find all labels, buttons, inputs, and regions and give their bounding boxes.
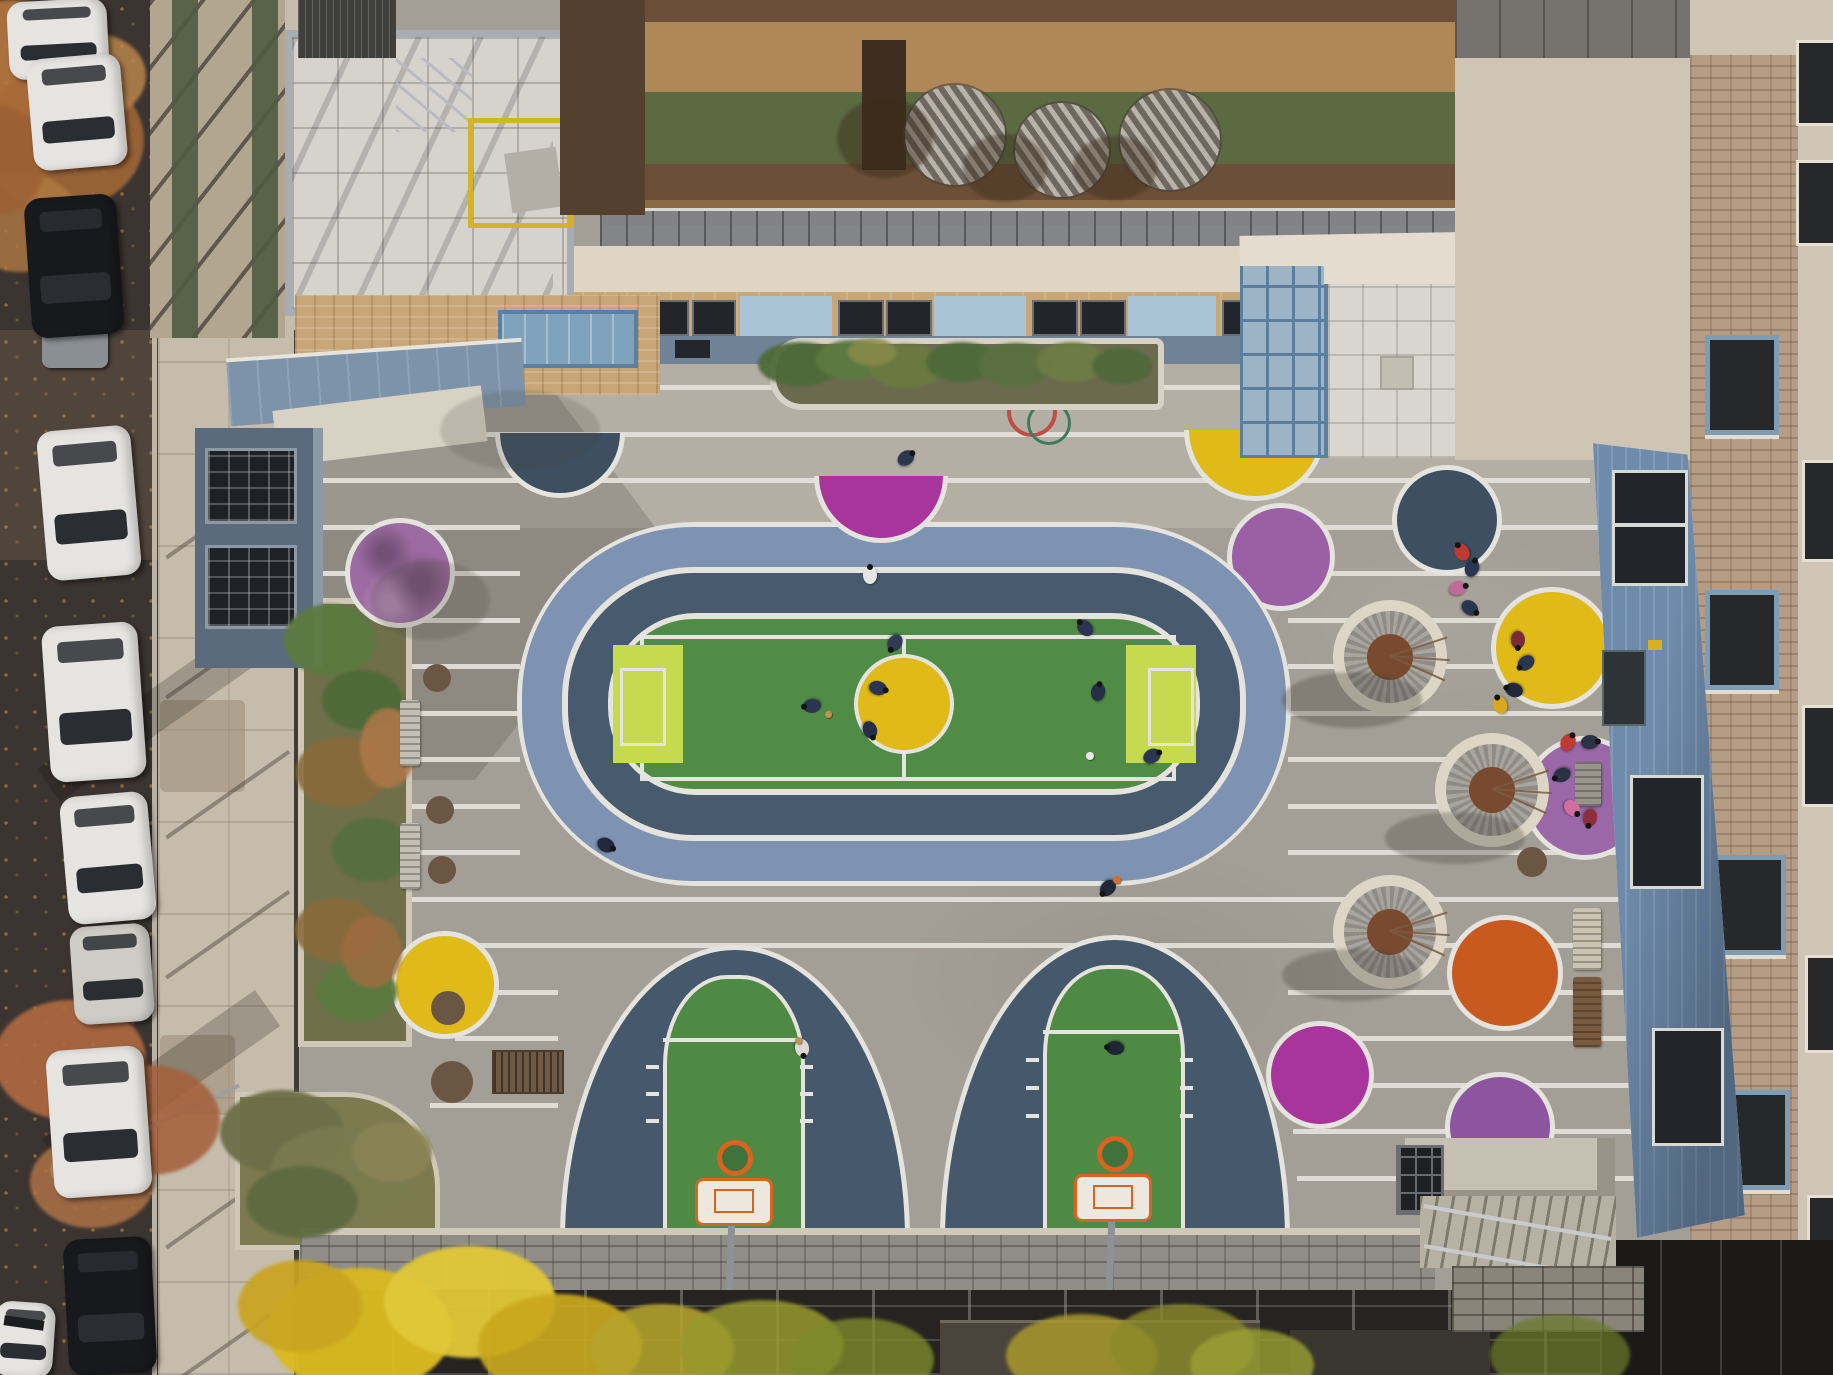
goal-box-right: [1148, 668, 1194, 746]
lane-tick: [800, 1065, 813, 1069]
terrace-band: [600, 0, 1460, 22]
lane-tick: [1026, 1086, 1039, 1090]
pavement-stripe: [310, 943, 1650, 948]
free-throw-line-left: [663, 1038, 801, 1042]
parked-car: [0, 1300, 57, 1375]
blue-building-window: [1652, 1028, 1724, 1146]
painted-circle-stool: [428, 856, 456, 884]
low-rooftop: [1290, 1330, 1490, 1375]
car-windshield: [77, 1312, 145, 1343]
school-window: [692, 300, 736, 336]
lane-tick: [646, 1092, 659, 1096]
brick-window: [1705, 335, 1779, 435]
aerial-schoolyard-photo: [0, 0, 1833, 1375]
pavement-stripe: [1288, 571, 1618, 576]
brick-window: [1705, 590, 1779, 690]
guarded-window: [205, 448, 297, 524]
goal-box-left: [620, 668, 666, 746]
person-head: [1515, 645, 1521, 651]
cream-wall: [1455, 290, 1705, 460]
foliage-blob: [1282, 672, 1422, 728]
painted-circle-stool: [423, 664, 451, 692]
painted-circle-navy: [1397, 470, 1497, 570]
foliage-blob: [1385, 812, 1525, 864]
painted-circle-stool: [431, 991, 465, 1025]
backboard-square: [714, 1189, 754, 1213]
parked-car: [41, 621, 148, 783]
bench: [1573, 908, 1601, 970]
parked-car: [25, 52, 128, 172]
pavement-stripe: [455, 1036, 558, 1041]
ball: [1113, 876, 1121, 884]
basketball-rim: [1097, 1136, 1133, 1172]
blue-wall-panel: [1128, 296, 1216, 336]
lane-tick: [1180, 1058, 1193, 1062]
lane-tick: [1180, 1114, 1193, 1118]
person-head: [801, 703, 808, 710]
painted-circle-stool: [1517, 847, 1547, 877]
school-window: [1032, 300, 1078, 336]
blue-building-door: [1602, 650, 1646, 726]
bench: [1573, 977, 1601, 1047]
cream-window: [1802, 705, 1833, 807]
plaza-access-panel: [1380, 356, 1414, 390]
school-window: [838, 300, 884, 336]
person-head: [1096, 681, 1103, 688]
lane-tick: [800, 1119, 813, 1123]
foliage-blob: [1282, 949, 1422, 1001]
person: [863, 566, 877, 584]
rack-panel: [504, 147, 564, 214]
foliage-blob: [440, 390, 600, 470]
painted-circle-orange: [1452, 920, 1558, 1026]
lane-tick: [646, 1065, 659, 1069]
foliage-blob: [370, 560, 490, 640]
person-head: [1075, 618, 1083, 626]
parked-car: [45, 1045, 153, 1199]
blue-building-window: [1630, 775, 1704, 889]
foliage-blob: [284, 604, 376, 676]
school-window: [886, 300, 932, 336]
free-throw-line-right: [1043, 1030, 1181, 1034]
pavement-stripe: [430, 1103, 558, 1108]
blue-wall-panel: [740, 296, 832, 336]
glass-canopy: [1240, 266, 1324, 458]
lane-tick: [646, 1119, 659, 1123]
dark-side-wall: [560, 0, 645, 215]
car-windshield: [0, 1342, 46, 1360]
door-sign: [1648, 640, 1662, 650]
foliage-blob: [848, 338, 896, 366]
parked-car: [69, 922, 156, 1025]
lane-tick: [800, 1092, 813, 1096]
parked-car: [36, 424, 143, 582]
foliage-blob: [1092, 348, 1152, 384]
parked-car: [59, 790, 158, 925]
terrace-band: [600, 22, 1460, 92]
lane-tick: [1026, 1058, 1039, 1062]
parked-car: [63, 1236, 158, 1375]
person-head: [1104, 1044, 1111, 1051]
blue-wall-panel: [934, 296, 1026, 336]
cream-window: [1805, 955, 1833, 1053]
backboard: [695, 1178, 773, 1226]
cream-window: [1796, 160, 1833, 246]
bench: [400, 700, 420, 766]
mesh-enclosure: [298, 0, 396, 58]
roof-stair-railing: [396, 58, 472, 132]
school-window: [1080, 300, 1126, 336]
foliage-blob: [342, 916, 402, 988]
car-windshield: [54, 509, 128, 545]
lane-tick: [1026, 1114, 1039, 1118]
foliage-blob: [1073, 136, 1157, 200]
pavement-stripe: [310, 897, 1645, 902]
bench: [1575, 762, 1601, 806]
ball: [825, 711, 832, 718]
foliage-blob: [352, 1122, 432, 1182]
car-windshield: [62, 1128, 138, 1163]
backboard-square: [1093, 1185, 1133, 1209]
green-roof-strip: [252, 0, 278, 338]
basketball-rim: [717, 1140, 753, 1176]
painted-circle-stool: [431, 1061, 473, 1103]
foliage-blob: [837, 98, 933, 178]
white-tile-plaza: [1324, 284, 1468, 458]
window-divider: [1612, 523, 1688, 527]
ball: [1086, 752, 1094, 760]
wall-vent: [675, 340, 710, 358]
cream-window: [1796, 40, 1833, 126]
car-windshield: [40, 272, 112, 305]
painted-circle-stool: [426, 796, 454, 824]
parked-car: [23, 193, 125, 339]
painted-circle-magenta: [1271, 1026, 1369, 1124]
bench: [400, 823, 420, 889]
foliage-blob: [238, 1260, 362, 1352]
lane-tick: [1180, 1086, 1193, 1090]
blue-building-window: [1612, 470, 1688, 586]
car-windshield: [58, 709, 133, 745]
green-roof-strip: [172, 0, 198, 338]
pavement-stripe: [310, 478, 1590, 483]
car-rear-window: [77, 1250, 138, 1272]
guarded-window: [205, 545, 297, 629]
foliage-blob: [963, 134, 1047, 202]
person-head: [867, 564, 873, 570]
ball: [795, 1037, 802, 1044]
backboard: [1074, 1174, 1152, 1222]
drain-grate: [492, 1050, 564, 1094]
person-head: [1454, 541, 1462, 549]
foliage-blob: [246, 1166, 358, 1238]
cream-window: [1802, 460, 1833, 562]
